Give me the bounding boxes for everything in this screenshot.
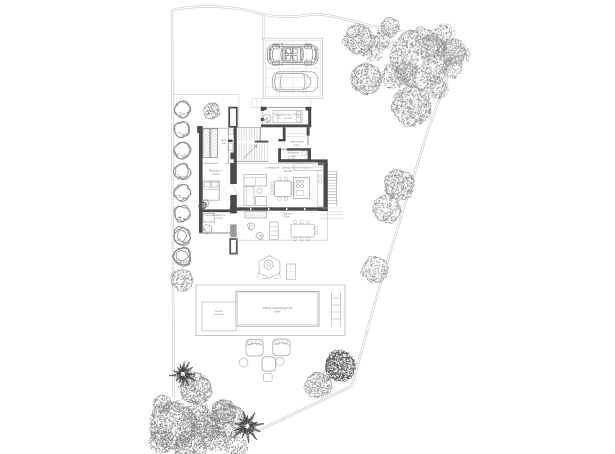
svg-text:Infinity swimming Pool: Infinity swimming Pool <box>263 306 293 310</box>
svg-text:48.5m²: 48.5m² <box>284 170 292 173</box>
svg-text:Livingroom - Dining Room - Kit: Livingroom - Dining Room - Kitchen <box>265 166 311 170</box>
svg-text:4.5m²: 4.5m² <box>290 154 297 157</box>
svg-text:Guest Room / Office: Guest Room / Office <box>275 112 302 116</box>
svg-text:Bedroom 1: Bedroom 1 <box>209 168 223 172</box>
svg-text:40m²: 40m² <box>274 311 280 314</box>
svg-text:16.5m²: 16.5m² <box>212 173 220 176</box>
svg-text:robe: robe <box>221 142 226 145</box>
svg-text:Ward: Ward <box>221 139 227 142</box>
svg-text:3.5m²: 3.5m² <box>293 144 300 147</box>
svg-text:11.0m²: 11.0m² <box>215 217 223 220</box>
svg-text:12.5m²: 12.5m² <box>284 117 292 120</box>
svg-text:Pool deck: Pool deck <box>214 313 225 316</box>
svg-text:30m²: 30m² <box>284 216 290 219</box>
